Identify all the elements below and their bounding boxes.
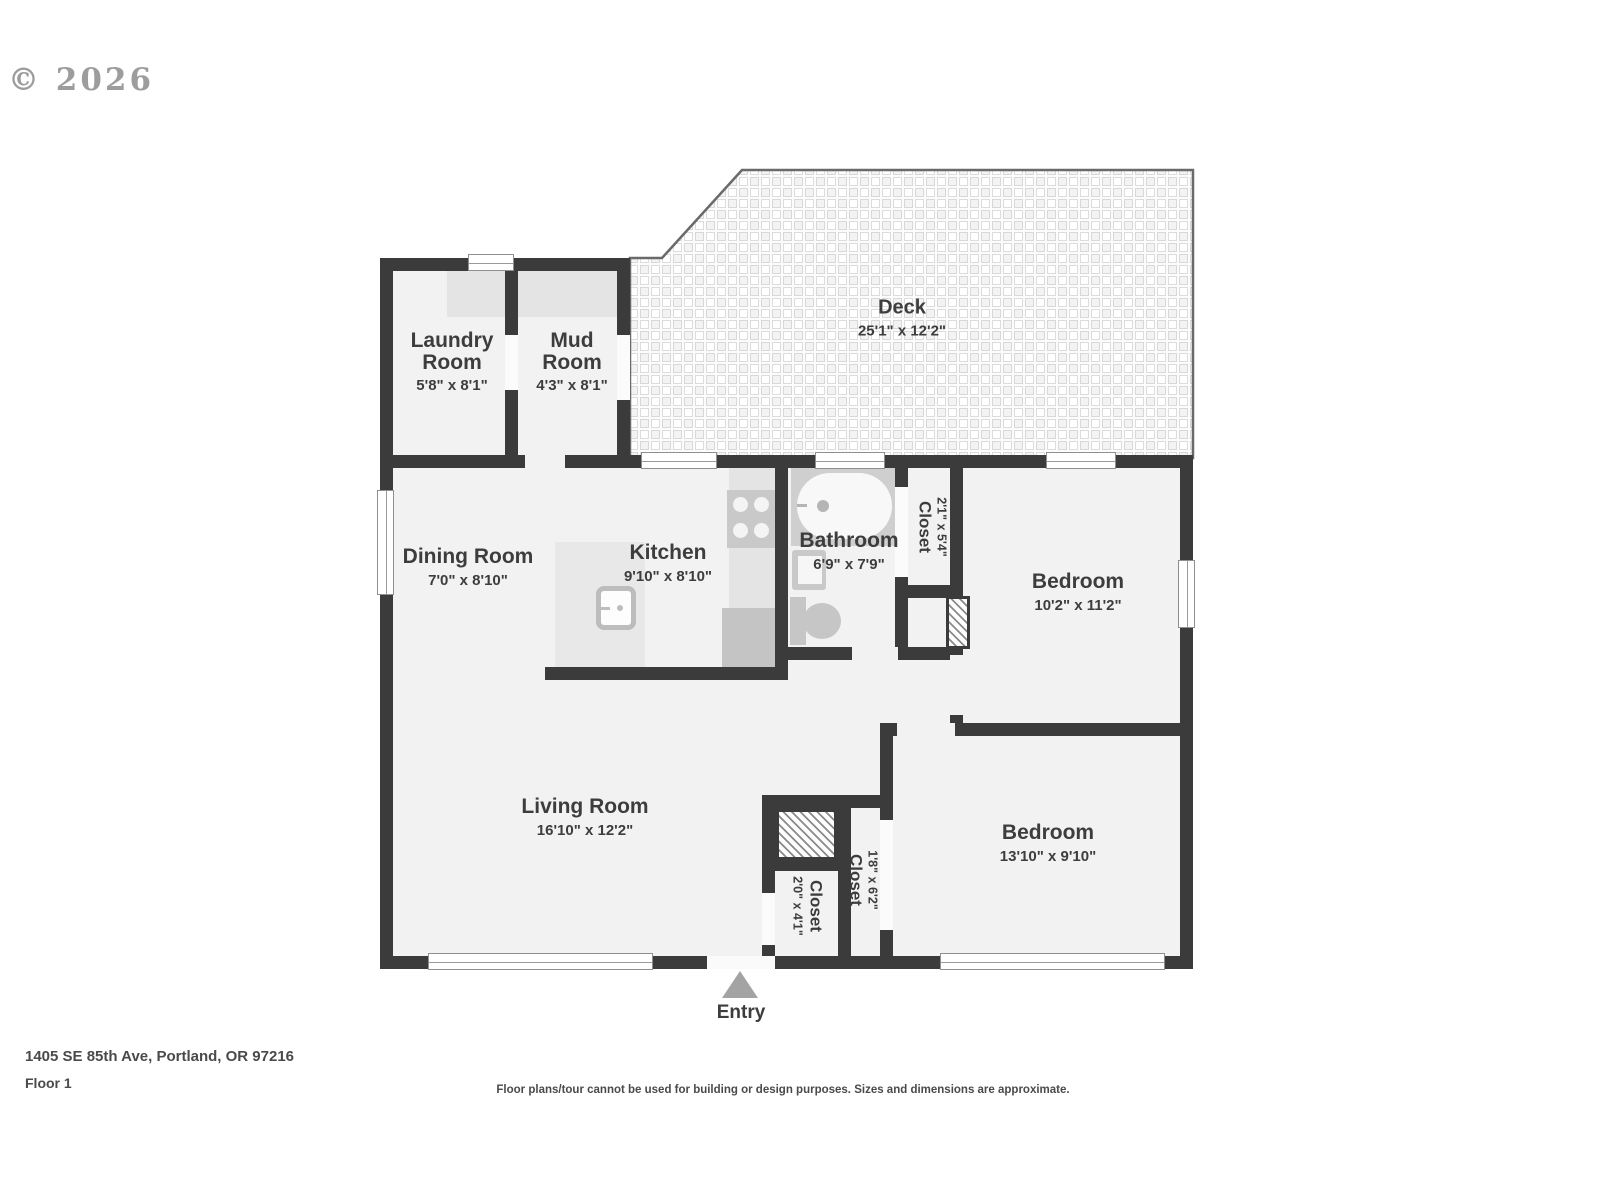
property-address: 1405 SE 85th Ave, Portland, OR 97216: [25, 1048, 294, 1065]
window-bedroom-upper-right: [1178, 560, 1195, 628]
room-dims: 5'8" x 8'1": [416, 377, 487, 394]
hatch-chase-entry: [775, 808, 838, 861]
room-name: Living Room: [521, 795, 648, 819]
label-kitchen: Kitchen 9'10" x 8'10": [624, 541, 712, 585]
room-name: Bathroom: [799, 529, 898, 553]
floor-label: Floor 1: [25, 1075, 72, 1091]
room-name: Kitchen: [629, 541, 706, 565]
label-laundry-room: Laundry Room 5'8" x 8'1": [392, 330, 512, 394]
wall-main-right: [1180, 455, 1193, 969]
label-bedroom-upper: Bedroom 10'2" x 11'2": [1032, 570, 1124, 614]
window-bedroom-lower: [940, 953, 1165, 970]
room-dims: 2'1" x 5'4": [934, 497, 948, 557]
entry-opening: [707, 956, 775, 969]
room-dims: 16'10" x 12'2": [537, 822, 633, 839]
entry-arrow-icon: [722, 971, 758, 998]
room-dims: 7'0" x 8'10": [428, 572, 508, 589]
room-name: Laundry Room: [392, 330, 512, 374]
label-bathroom: Bathroom 6'9" x 7'9": [799, 529, 898, 573]
window-dining: [377, 490, 394, 595]
room-name: Mud Room: [533, 330, 611, 374]
stove-icon: [727, 490, 775, 548]
room-name: Bedroom: [1032, 570, 1124, 594]
room-name: Closet: [915, 501, 935, 553]
room-name: Closet: [846, 854, 866, 906]
room-name: Closet: [806, 880, 826, 932]
room-name: Bedroom: [1002, 821, 1094, 845]
label-closet-bathroom: Closet 2'1" x 5'4": [915, 497, 950, 557]
room-dims: 25'1" x 12'2": [858, 323, 946, 340]
mudroom-counter: [518, 271, 617, 317]
room-dims: 9'10" x 8'10": [624, 568, 712, 585]
wall-kitchen-bottom: [545, 667, 778, 680]
room-dims: 6'9" x 7'9": [813, 556, 884, 573]
room-name: Dining Room: [403, 545, 534, 569]
window-bedroom-upper-top: [1046, 452, 1116, 469]
door-closet-entry: [762, 893, 775, 945]
label-closet-bedroom: Closet 1'8" x 6'2": [846, 850, 881, 910]
window-living: [428, 953, 653, 970]
room-name: Deck: [878, 297, 926, 320]
label-living-room: Living Room 16'10" x 12'2": [521, 795, 648, 839]
door-closet-bedroom: [880, 820, 893, 930]
disclaimer-text: Floor plans/tour cannot be used for buil…: [433, 1084, 1133, 1096]
room-dims: 10'2" x 11'2": [1034, 597, 1121, 614]
wall-closets-top: [762, 795, 893, 808]
laundry-counter: [447, 271, 505, 317]
door-bedroom-upper: [950, 655, 963, 715]
dishwasher-icon: [596, 586, 636, 630]
hatch-chase-hall: [946, 596, 970, 649]
window-kitchen-deck: [641, 452, 717, 469]
room-dims: 1'8" x 6'2": [865, 850, 879, 910]
label-mud-room: Mud Room 4'3" x 8'1": [533, 330, 611, 394]
entry-label: Entry: [717, 1002, 766, 1024]
label-bedroom-lower: Bedroom 13'10" x 9'10": [1000, 821, 1096, 865]
room-dims: 13'10" x 9'10": [1000, 848, 1096, 865]
door-bathroom: [852, 647, 898, 660]
copyright-watermark: © 2026: [8, 62, 154, 98]
room-dims: 2'0" x 4'1": [791, 876, 805, 936]
label-dining-room: Dining Room 7'0" x 8'10": [403, 545, 534, 589]
door-mud-deck: [617, 335, 630, 400]
door-mud-kitchen: [525, 455, 565, 468]
window-bathroom: [815, 452, 885, 469]
room-dims: 4'3" x 8'1": [536, 377, 607, 394]
label-deck: Deck 25'1" x 12'2": [858, 297, 946, 340]
label-closet-entry: Closet 2'0" x 4'1": [791, 876, 826, 936]
toilet-icon-bowl: [803, 603, 841, 639]
window-laundry: [468, 254, 514, 271]
door-bedroom-lower: [897, 723, 955, 736]
kitchen-sink-cabinet: [722, 608, 775, 667]
